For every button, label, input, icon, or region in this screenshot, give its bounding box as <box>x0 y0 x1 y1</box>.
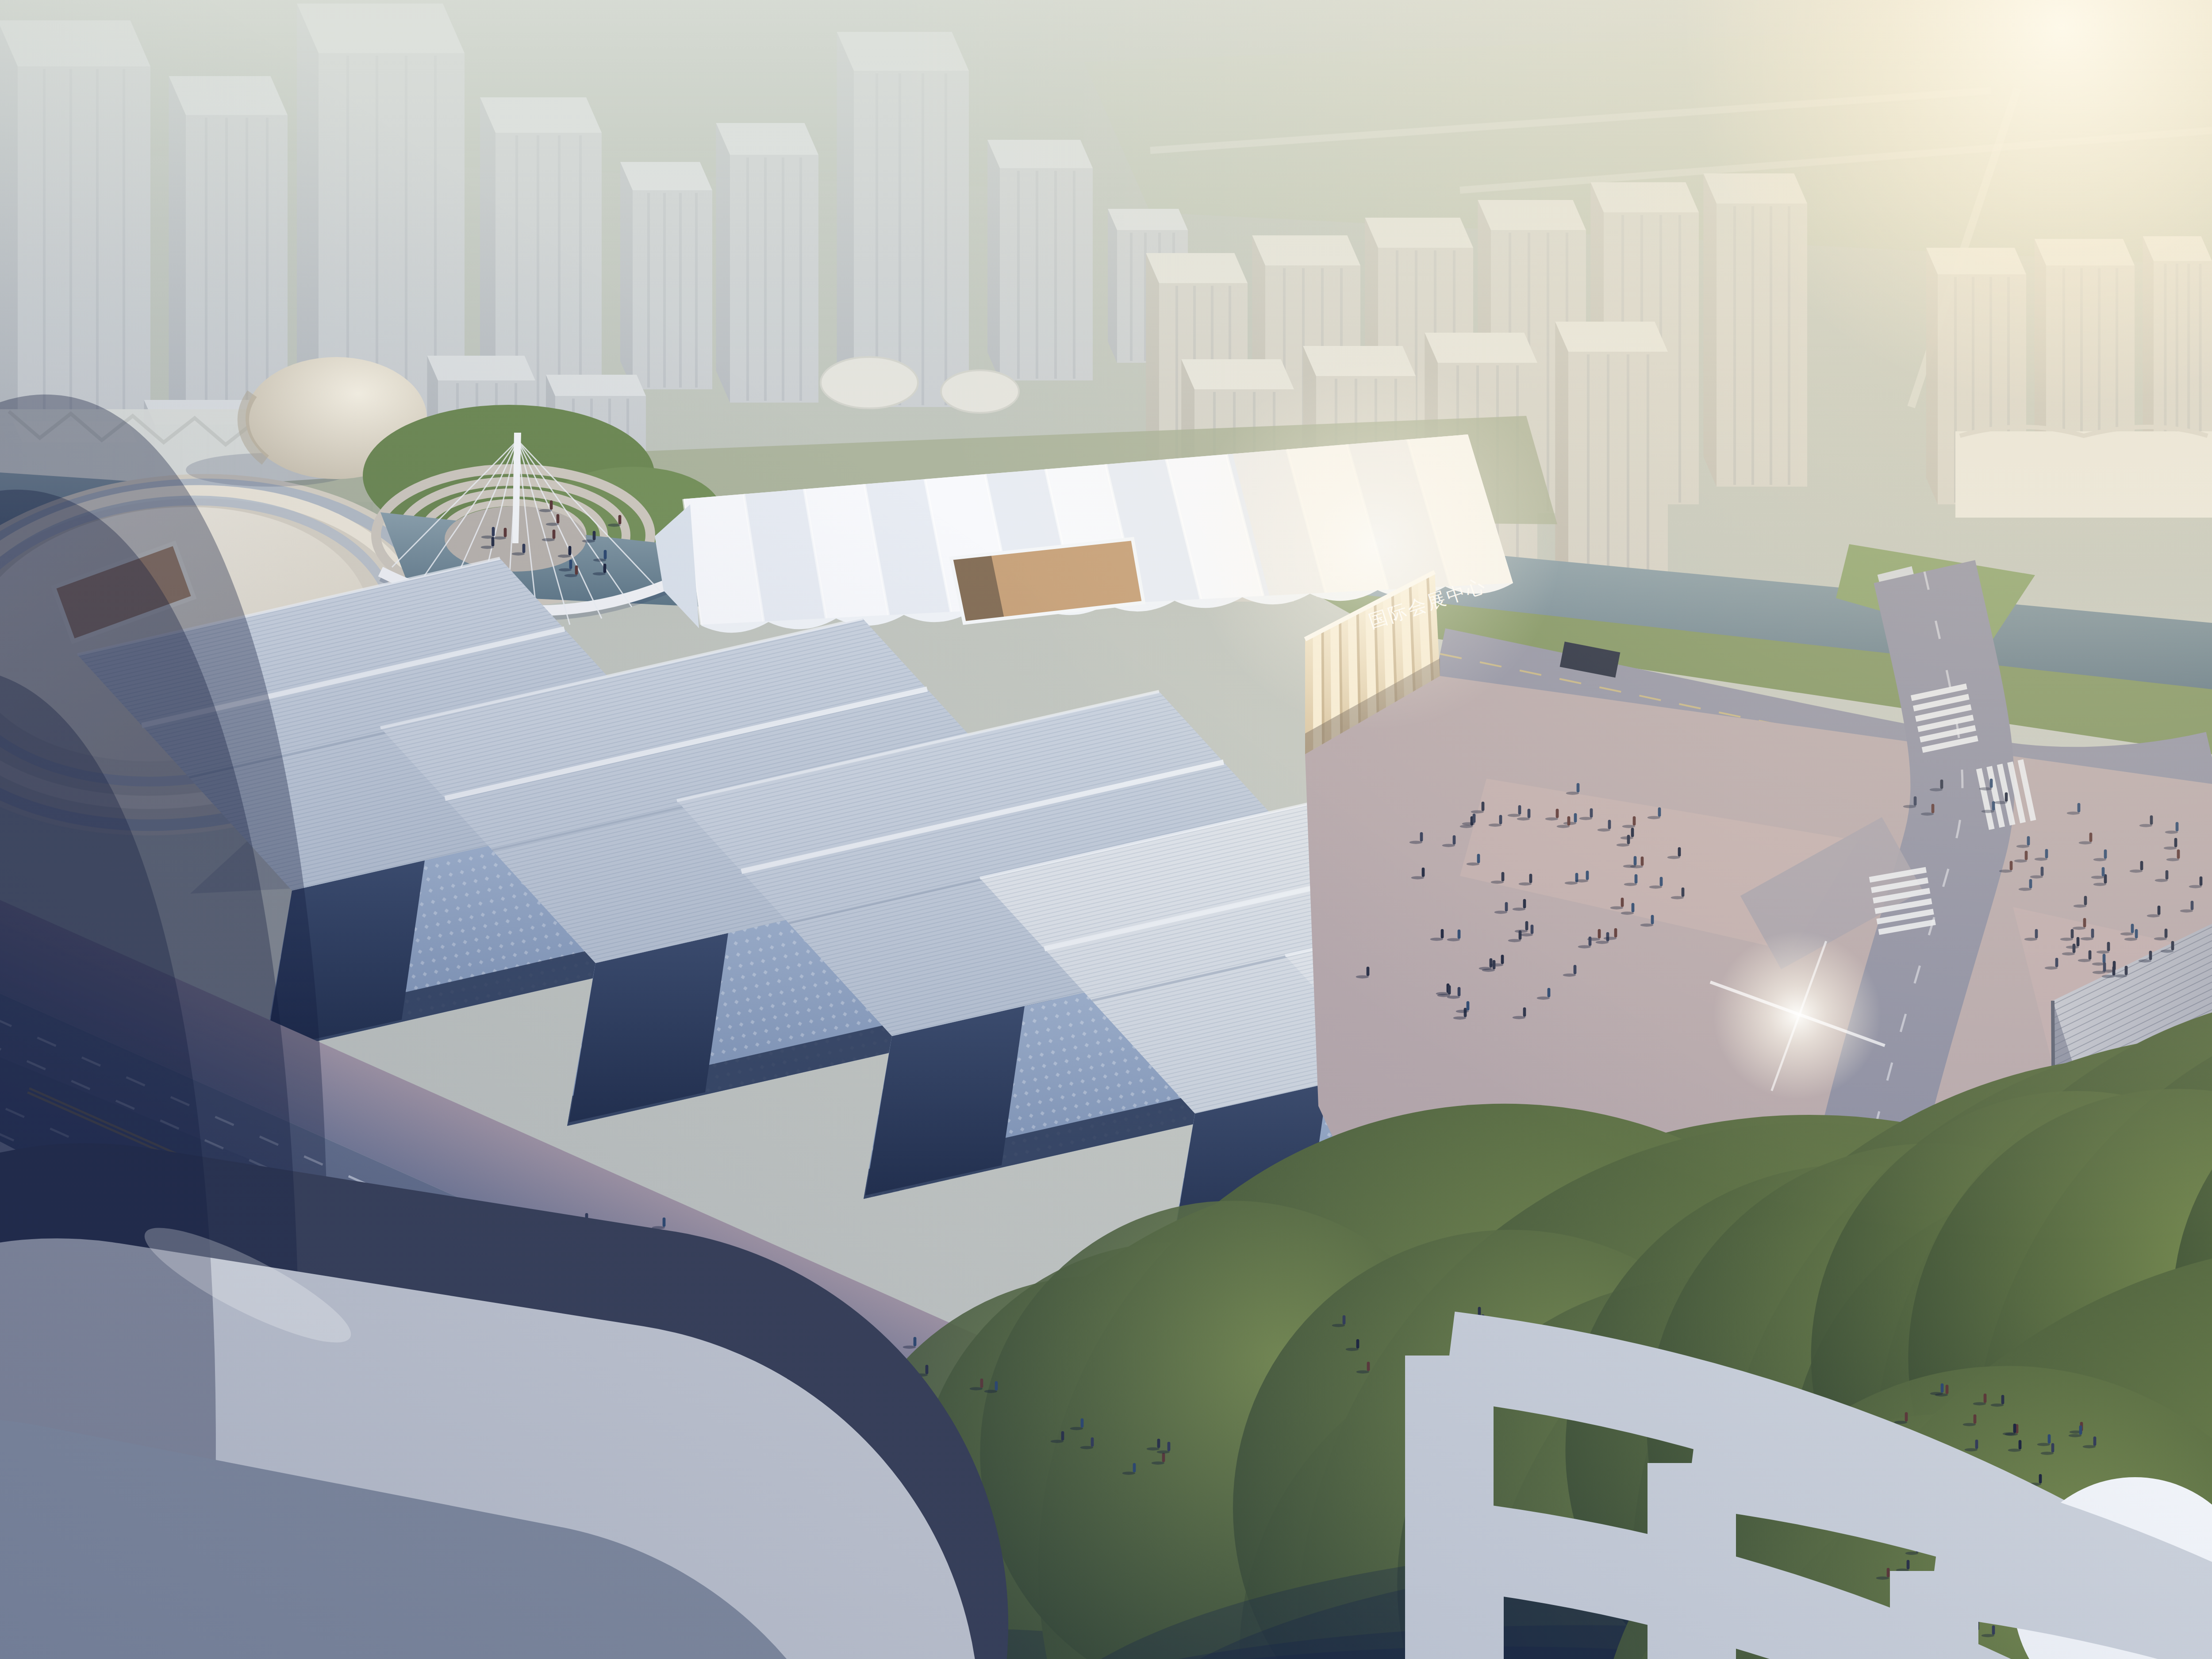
lens-glow <box>1190 358 1562 730</box>
light-overlays <box>0 0 2212 1659</box>
scene-canvas: 国际会展中心 <box>0 0 2212 1659</box>
aerial-architectural-rendering: 国际会展中心 <box>0 0 2212 1659</box>
